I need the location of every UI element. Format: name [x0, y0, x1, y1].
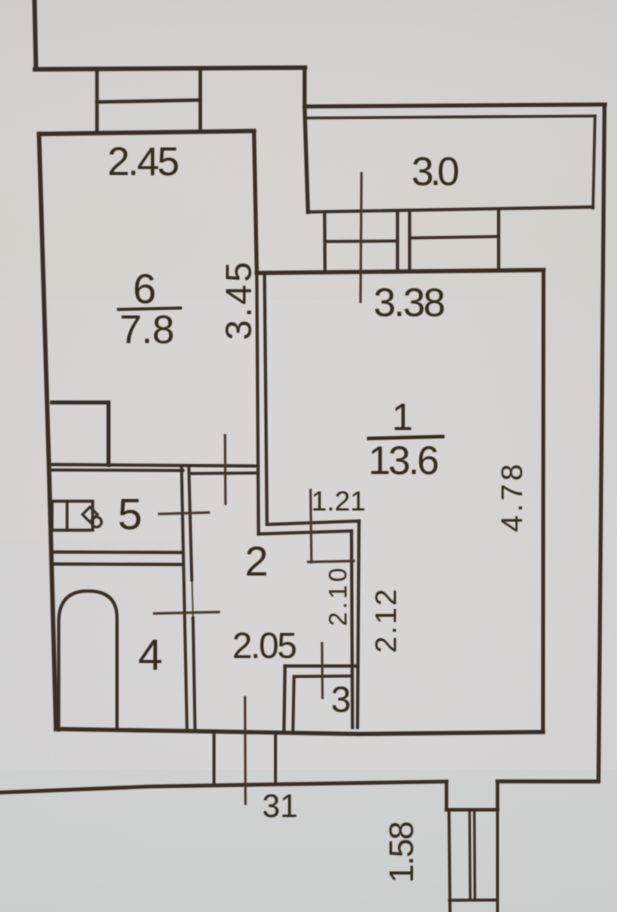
svg-text:3.0: 3.0 — [412, 150, 460, 194]
svg-text:7.8: 7.8 — [120, 308, 175, 352]
svg-text:2.05: 2.05 — [232, 625, 297, 666]
svg-text:3.38: 3.38 — [374, 281, 446, 325]
svg-text:2.45: 2.45 — [108, 140, 180, 184]
svg-text:2.10: 2.10 — [325, 568, 353, 626]
svg-text:2.12: 2.12 — [370, 589, 403, 653]
svg-text:4.78: 4.78 — [496, 464, 529, 532]
svg-text:1: 1 — [392, 397, 413, 439]
svg-text:1.58: 1.58 — [383, 821, 421, 883]
svg-text:5: 5 — [118, 490, 142, 539]
svg-text:6: 6 — [133, 265, 156, 312]
svg-text:4: 4 — [138, 631, 162, 680]
svg-text:2: 2 — [245, 538, 268, 585]
svg-text:1.21: 1.21 — [311, 486, 366, 517]
svg-text:3: 3 — [331, 679, 351, 720]
svg-text:31: 31 — [262, 788, 298, 824]
svg-text:13.6: 13.6 — [368, 439, 439, 483]
svg-text:3.45: 3.45 — [218, 262, 259, 340]
